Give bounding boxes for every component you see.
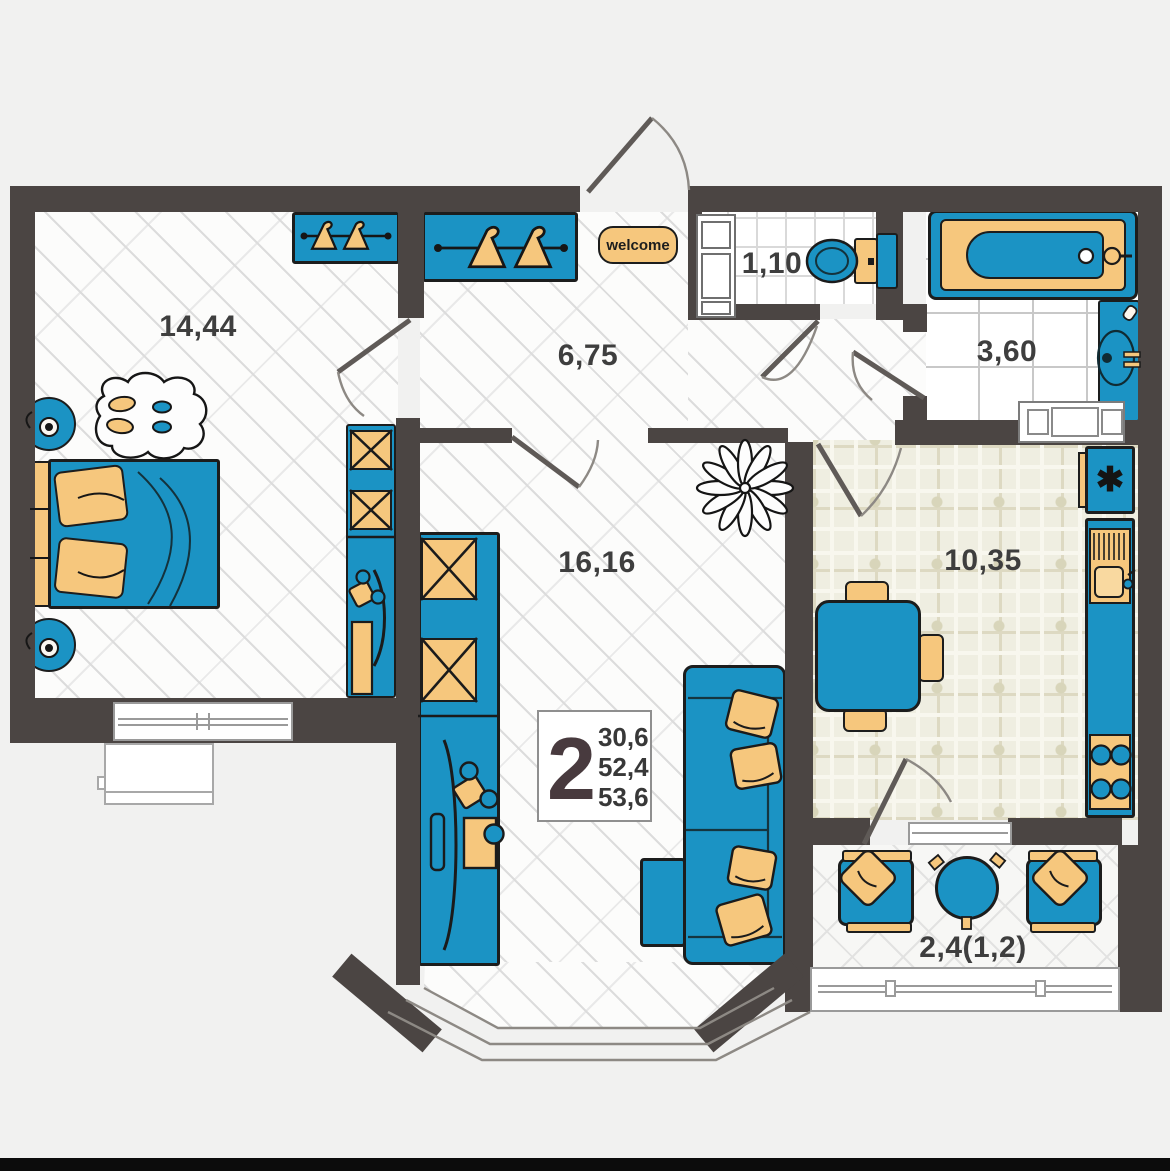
floor-plan: welcome ✱ xyxy=(0,0,1170,1171)
balcony-chair-right-backbar xyxy=(1028,850,1098,862)
kitchen-chair-right xyxy=(918,634,944,682)
bed-pillow-bottom xyxy=(53,536,128,599)
kitchen-stove xyxy=(1089,734,1131,810)
apartment-area-value: 52,4 xyxy=(598,752,649,782)
living-area-value: 30,6 xyxy=(598,722,649,752)
bedroom-floor xyxy=(35,212,398,698)
apartment-spec-badge: 2 30,6 52,4 53,6 xyxy=(537,710,652,822)
welcome-mat: welcome xyxy=(598,226,678,264)
wall-hall-living-stub xyxy=(418,428,512,443)
kitchen-balcony-window xyxy=(908,822,1012,845)
balcony-round-table xyxy=(935,856,999,920)
wall-kitchen-balcony-left xyxy=(785,818,870,845)
balcony-chair-right-frontbar xyxy=(1030,922,1096,933)
wall-bedroom-hall-divider-upper xyxy=(398,212,424,318)
wc-area-label: 1,10 xyxy=(742,249,802,279)
wall-living-top xyxy=(648,428,788,443)
kitchen-table xyxy=(815,600,921,712)
wall-right xyxy=(1138,186,1162,845)
balcony-railing xyxy=(810,967,1120,1012)
wall-kitchen-balcony-right xyxy=(1008,818,1122,845)
wc-toilet-seat xyxy=(854,238,878,284)
hallway-area-label: 6,75 xyxy=(558,341,618,371)
balcony-chair-left xyxy=(838,858,914,926)
bedroom-shelf-box-2 xyxy=(350,490,392,530)
kitchen-sink-basin xyxy=(1094,566,1124,598)
bedroom-shelf-box-1 xyxy=(350,430,392,470)
living-room-area-label: 16,16 xyxy=(558,548,636,578)
total-area-value: 53,6 xyxy=(598,782,649,812)
hall-front-bath-floor xyxy=(688,319,928,442)
washing-machine xyxy=(1018,401,1125,443)
entrance-door-swing xyxy=(588,118,689,192)
living-shelf-box-2 xyxy=(421,638,477,702)
welcome-mat-label: welcome xyxy=(606,237,669,254)
wall-bath-left-stub-upper xyxy=(903,304,927,332)
wall-left xyxy=(10,186,35,743)
hallway-wardrobe xyxy=(422,212,578,282)
bedroom-window xyxy=(113,702,293,741)
sofa-body xyxy=(683,665,786,965)
wall-living-kitchen-divider xyxy=(785,442,813,1012)
sofa-chaise xyxy=(640,858,686,947)
bathtub-basin xyxy=(966,231,1104,279)
balcony-area-label: 2,4(1,2) xyxy=(919,933,1026,963)
balcony-chair-left-backbar xyxy=(842,850,912,862)
rooms-count: 2 xyxy=(547,732,596,807)
wall-top-right xyxy=(688,186,1162,212)
wc-cistern xyxy=(876,233,898,289)
bedroom-area-label: 14,44 xyxy=(159,312,237,342)
kitchen-area-label: 10,35 xyxy=(944,546,1022,576)
balcony-chair-right xyxy=(1026,858,1102,926)
bedroom-ac-unit xyxy=(104,743,214,805)
bed-pillow-top xyxy=(53,464,129,528)
wall-top-left xyxy=(10,186,580,212)
balcony-chair-left-frontbar xyxy=(846,922,912,933)
bedroom-wardrobe xyxy=(292,212,400,264)
wc-cabinet xyxy=(696,214,736,318)
image-bottom-strip xyxy=(0,1158,1170,1171)
wall-bedroom-living-divider xyxy=(396,418,420,985)
bathroom-area-label: 3,60 xyxy=(977,337,1037,367)
wall-balcony-right xyxy=(1118,845,1162,1012)
living-shelf-box-1 xyxy=(421,538,477,600)
fridge-defrost-icon: ✱ xyxy=(1085,446,1135,514)
ac-unit-nub xyxy=(97,776,106,790)
